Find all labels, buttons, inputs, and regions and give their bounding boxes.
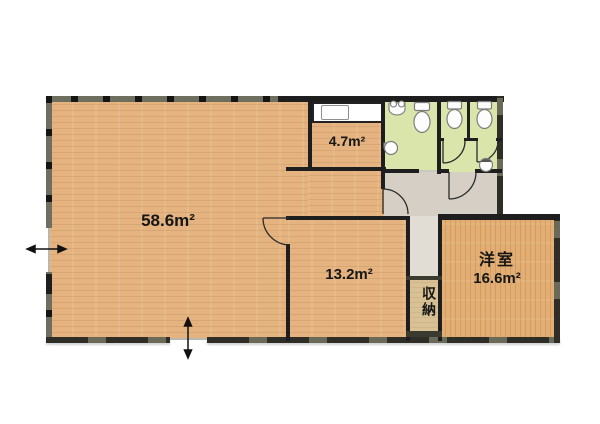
toilet-icon: [415, 103, 430, 111]
toilet-icon: [477, 110, 492, 129]
western-room-area-label: 16.6m²: [447, 270, 547, 287]
door-swing-icon: [383, 189, 408, 214]
entry-arrow-vertical-icon: [185, 350, 192, 358]
round-sink-icon: [385, 142, 398, 155]
door-swing-icon: [443, 141, 465, 163]
entry-arrow-horizontal-icon: [58, 246, 66, 253]
door-swing-icon: [263, 218, 290, 245]
floor-plan-canvas: 58.6m² 4.7m² 13.2m² 洋室 16.6m² 収納: [0, 0, 600, 424]
toilet-icon: [448, 102, 462, 110]
middle-room-area-label: 13.2m²: [309, 266, 389, 283]
toilet-icon: [447, 110, 462, 129]
living-room-area-label: 58.6m²: [110, 211, 226, 231]
closet-label: 収納: [418, 286, 437, 318]
toilet-icon: [478, 102, 492, 110]
entry-arrow-horizontal-icon: [27, 246, 35, 253]
entry-arrow-vertical-icon: [185, 318, 192, 326]
western-room-name: 洋室: [447, 252, 547, 270]
door-swing-icon: [449, 172, 476, 199]
toilet-icon: [414, 112, 430, 133]
urinal-icon: [391, 101, 397, 107]
kitchen-area-label: 4.7m²: [317, 133, 377, 149]
western-room-label: 洋室 16.6m²: [447, 252, 547, 288]
fixtures-overlay: [0, 0, 600, 424]
urinal-icon: [399, 101, 405, 107]
